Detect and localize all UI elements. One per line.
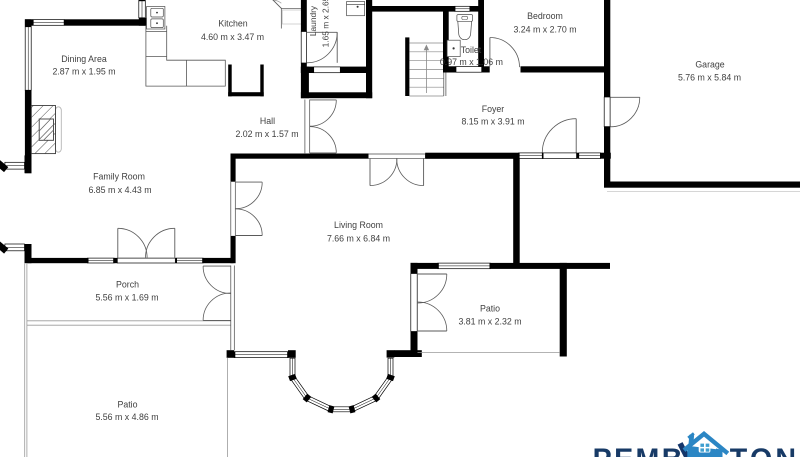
svg-text:Foyer: Foyer bbox=[482, 104, 505, 114]
svg-text:5.76 m x 5.84 m: 5.76 m x 5.84 m bbox=[678, 73, 741, 83]
svg-text:2.02 m x 1.57 m: 2.02 m x 1.57 m bbox=[235, 129, 298, 139]
svg-text:Bedroom: Bedroom bbox=[527, 11, 563, 21]
svg-text:Toilet: Toilet bbox=[461, 45, 482, 55]
svg-text:0.97 m x 1.06 m: 0.97 m x 1.06 m bbox=[440, 57, 503, 67]
svg-text:Kitchen: Kitchen bbox=[218, 19, 247, 29]
svg-text:PEMB: PEMB bbox=[593, 443, 685, 457]
svg-text:Garage: Garage bbox=[695, 60, 724, 70]
svg-text:Dining Area: Dining Area bbox=[61, 54, 107, 64]
svg-text:5.56 m x 1.69 m: 5.56 m x 1.69 m bbox=[95, 293, 158, 303]
svg-text:Living Room: Living Room bbox=[334, 220, 383, 230]
svg-text:Hall: Hall bbox=[260, 116, 275, 126]
svg-text:Porch: Porch bbox=[116, 280, 139, 290]
svg-text:5.56 m x 4.86 m: 5.56 m x 4.86 m bbox=[95, 412, 158, 422]
svg-text:4.60 m x 3.47 m: 4.60 m x 3.47 m bbox=[201, 32, 264, 42]
svg-text:3.81 m x 2.32 m: 3.81 m x 2.32 m bbox=[458, 317, 521, 327]
svg-text:3.24 m x 2.70 m: 3.24 m x 2.70 m bbox=[513, 25, 576, 35]
svg-text:Patio: Patio bbox=[117, 400, 137, 410]
svg-text:8.15 m x 3.91 m: 8.15 m x 3.91 m bbox=[461, 117, 524, 127]
svg-text:6.85 m x 4.43 m: 6.85 m x 4.43 m bbox=[88, 185, 151, 195]
svg-text:Patio: Patio bbox=[480, 304, 500, 314]
svg-text:Laundry: Laundry bbox=[308, 5, 318, 36]
svg-text:1.65 m x 2.65: 1.65 m x 2.65 bbox=[321, 0, 331, 47]
svg-text:7.66 m x 6.84 m: 7.66 m x 6.84 m bbox=[327, 234, 390, 244]
svg-text:2.87 m x 1.95 m: 2.87 m x 1.95 m bbox=[52, 67, 115, 77]
svg-text:TON: TON bbox=[730, 443, 799, 457]
svg-text:Family Room: Family Room bbox=[93, 172, 145, 182]
